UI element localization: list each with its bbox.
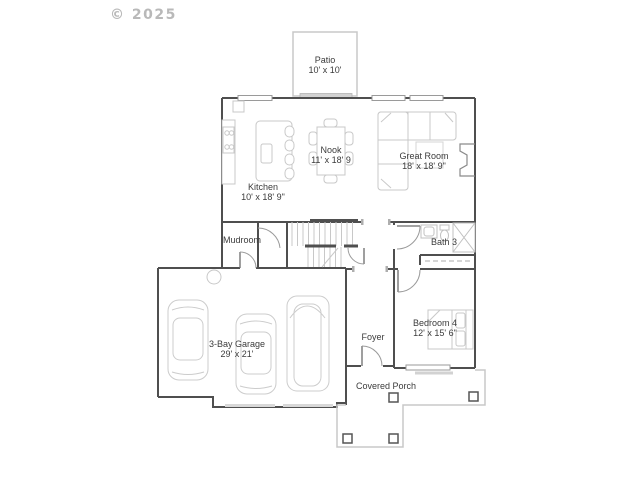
patio-label: Patio: [315, 55, 336, 65]
bar-stool: [285, 154, 294, 165]
car-1: [168, 300, 208, 380]
cooktop-burner: [225, 145, 229, 149]
island-sink: [261, 144, 272, 163]
garage-dims: 29' x 21': [221, 349, 254, 359]
porch-posts: [343, 392, 478, 443]
suv: [287, 296, 329, 391]
staircase: [292, 221, 358, 268]
bedroom4-label: Bedroom 4: [413, 318, 457, 328]
bar-stool: [285, 168, 294, 179]
pillow: [456, 313, 465, 328]
cooktop-burner: [229, 145, 233, 149]
garage-label: 3-Bay Garage: [209, 339, 265, 349]
covered-porch-label: Covered Porch: [356, 381, 416, 391]
water-heater: [207, 270, 221, 284]
nook-dims: 11' x 18' 9: [311, 155, 351, 165]
bar-stool: [285, 126, 294, 137]
bath-door-gap: [393, 225, 396, 249]
cooktop-burner: [225, 131, 229, 135]
kitchen-counter: [222, 101, 244, 184]
bath3-label: Bath 3: [431, 237, 457, 247]
nook-label: Nook: [320, 145, 342, 155]
chair: [324, 119, 337, 127]
porch-window-marker: [415, 372, 453, 375]
chair: [309, 132, 317, 145]
floorplan-page: © 2025: [0, 0, 640, 480]
kitchen-label: Kitchen: [248, 182, 278, 192]
pillow: [456, 331, 465, 346]
chair: [324, 175, 337, 183]
cooktop-burner: [229, 131, 233, 135]
mudroom-label: Mudroom: [223, 235, 261, 245]
floorplan-canvas: © 2025: [0, 0, 640, 480]
chair: [345, 132, 353, 145]
toilet-tank: [440, 225, 449, 230]
patio-dims: 10' x 10': [309, 65, 342, 75]
kitchen-dims: 10' x 18' 9": [241, 192, 285, 202]
copyright-watermark: © 2025: [110, 7, 177, 23]
foyer-label: Foyer: [361, 332, 384, 342]
great-room-dims: 18' x 18' 9": [402, 161, 446, 171]
kitchen-island: [256, 121, 294, 181]
bar-stool: [285, 140, 294, 151]
headboard: [466, 310, 473, 349]
fireplace: [460, 144, 475, 176]
great-room-label: Great Room: [399, 151, 448, 161]
bedroom4-dims: 12' x 15' 6": [413, 328, 457, 338]
